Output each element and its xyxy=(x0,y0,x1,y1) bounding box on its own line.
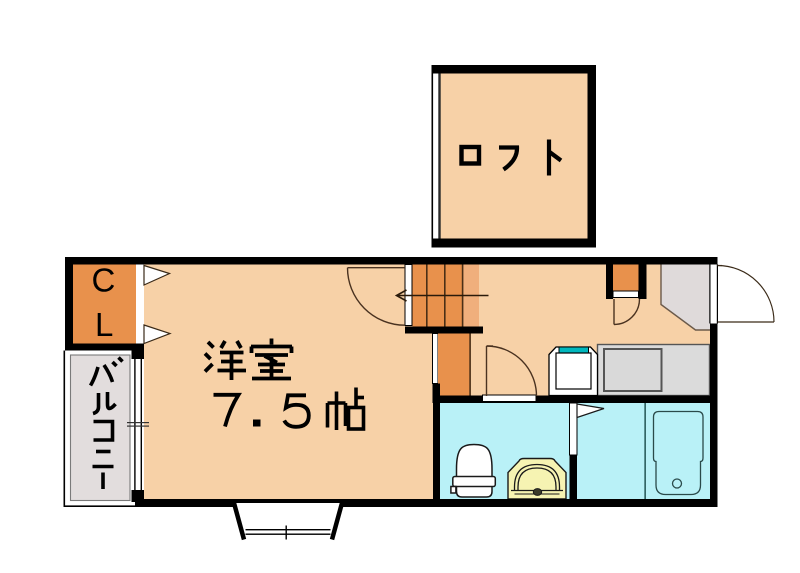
svg-text:L: L xyxy=(95,306,113,343)
svg-text:C: C xyxy=(92,262,116,299)
